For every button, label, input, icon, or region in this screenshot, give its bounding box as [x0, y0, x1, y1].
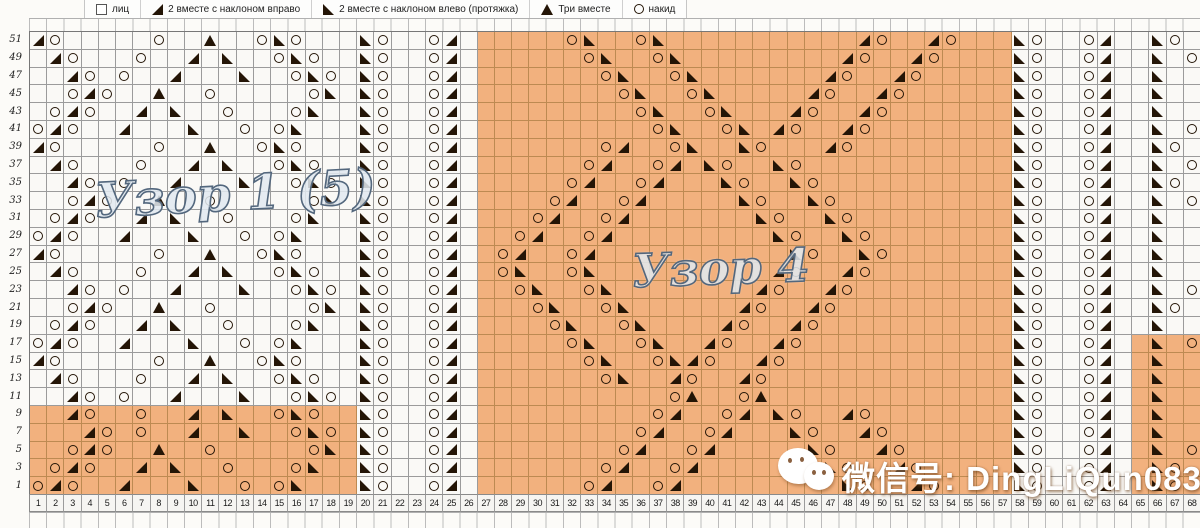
- grid-cell: [547, 335, 564, 353]
- decrease-left-icon: [1014, 249, 1025, 260]
- decrease-left-icon: [790, 427, 801, 438]
- grid-cell: [392, 263, 409, 281]
- grid-cell: [495, 477, 512, 495]
- col-label: 3: [64, 494, 81, 512]
- decrease-left-icon: [1152, 177, 1163, 188]
- yarn-over-icon: [1032, 320, 1042, 330]
- grid-cell: [1012, 246, 1029, 264]
- grid-cell: [616, 85, 633, 103]
- yarn-over-icon: [808, 107, 818, 117]
- grid-cell: [1184, 210, 1200, 228]
- decrease-left-icon: [704, 160, 715, 171]
- row-label: 11: [0, 387, 28, 405]
- decrease-right-icon: [859, 35, 870, 46]
- yarn-over-icon: [774, 356, 784, 366]
- grid-cell: [202, 477, 219, 495]
- grid-cell: [47, 424, 64, 442]
- grid-cell: [1046, 353, 1063, 371]
- grid-cell: [151, 477, 168, 495]
- grid-cell: [47, 281, 64, 299]
- grid-cell: [822, 103, 839, 121]
- yarn-over-icon: [877, 107, 887, 117]
- grid-cell: [650, 353, 667, 371]
- yarn-over-icon: [808, 178, 818, 188]
- grid-cell: [1132, 228, 1149, 246]
- grid-cell: [960, 299, 977, 317]
- grid-cell: [306, 228, 323, 246]
- grid-cell: [753, 370, 770, 388]
- col-label: 47: [822, 494, 839, 512]
- yarn-over-icon: [429, 320, 439, 330]
- grid-cell: [925, 85, 942, 103]
- grid-cell: [185, 353, 202, 371]
- col-label: 43: [753, 494, 770, 512]
- grid-cell: [633, 442, 650, 460]
- grid-cell: [64, 353, 81, 371]
- yarn-over-icon: [378, 338, 388, 348]
- decrease-left-icon: [291, 480, 302, 491]
- grid-cell: [1046, 157, 1063, 175]
- grid-cell: [271, 157, 288, 175]
- grid-cell: [1046, 68, 1063, 86]
- decrease-right-icon: [50, 480, 61, 491]
- grid-cell: [943, 121, 960, 139]
- yarn-over-icon: [670, 392, 680, 402]
- yarn-over-icon: [584, 53, 594, 63]
- grid-cell: [237, 174, 254, 192]
- grid-cell: [1149, 68, 1166, 86]
- yarn-over-icon: [1032, 231, 1042, 241]
- grid-cell: [1012, 121, 1029, 139]
- grid-cell: [581, 68, 598, 86]
- grid-cell: [616, 388, 633, 406]
- yarn-over-icon: [274, 160, 284, 170]
- grid-cell: [254, 121, 271, 139]
- decrease-left-icon: [308, 213, 319, 224]
- yarn-over-icon: [498, 249, 508, 259]
- grid-cell: [461, 353, 478, 371]
- decrease-left-icon: [360, 142, 371, 153]
- grid-cell: [1029, 424, 1046, 442]
- grid-cell: [908, 68, 925, 86]
- grid-cell: [1012, 388, 1029, 406]
- yarn-over-icon: [33, 481, 43, 491]
- grid-cell: [1012, 317, 1029, 335]
- grid-cell: [650, 442, 667, 460]
- grid-cell: [47, 210, 64, 228]
- yarn-over-icon: [877, 249, 887, 259]
- yarn-over-icon: [1084, 231, 1094, 241]
- grid-cell: [1080, 281, 1097, 299]
- yarn-over-icon: [119, 392, 129, 402]
- grid-cell: [753, 121, 770, 139]
- grid-cell: [1063, 32, 1080, 50]
- grid-cell: [99, 139, 116, 157]
- grid-cell: [977, 388, 994, 406]
- grid-cell: [650, 157, 667, 175]
- grid-cell: [1012, 406, 1029, 424]
- grid-cell: [323, 388, 340, 406]
- col-label: 4: [82, 494, 99, 512]
- grid-cell: [409, 174, 426, 192]
- grid-cell: [753, 228, 770, 246]
- grid-cell: [443, 139, 460, 157]
- yarn-over-icon: [291, 285, 301, 295]
- grid-cell: [598, 388, 615, 406]
- grid-cell: [667, 370, 684, 388]
- decrease-right-icon: [188, 160, 199, 171]
- col-label: 6: [116, 494, 133, 512]
- grid-cell: [650, 85, 667, 103]
- grid-cell: [202, 103, 219, 121]
- grid-cell: [30, 121, 47, 139]
- grid-cell: [237, 299, 254, 317]
- yarn-over-icon: [240, 231, 250, 241]
- grid-cell: [908, 335, 925, 353]
- grid-cell: [168, 121, 185, 139]
- pattern-grid: [29, 31, 1200, 495]
- grid-cell: [529, 32, 546, 50]
- yarn-over-icon: [50, 356, 60, 366]
- grid-cell: [340, 442, 357, 460]
- grid-cell: [943, 335, 960, 353]
- decrease-left-icon: [360, 160, 371, 171]
- grid-cell: [702, 139, 719, 157]
- grid-cell: [564, 388, 581, 406]
- grid-cell: [271, 406, 288, 424]
- grid-cell: [202, 192, 219, 210]
- decrease-right-icon: [446, 106, 457, 117]
- yarn-over-icon: [877, 427, 887, 437]
- grid-cell: [168, 424, 185, 442]
- yarn-over-icon: [378, 320, 388, 330]
- grid-cell: [684, 370, 701, 388]
- grid-cell: [409, 50, 426, 68]
- grid-cell: [288, 281, 305, 299]
- grid-cell: [1115, 246, 1132, 264]
- grid-cell: [736, 370, 753, 388]
- grid-cell: [874, 406, 891, 424]
- decrease-left-icon: [308, 462, 319, 473]
- grid-cell: [443, 192, 460, 210]
- decrease-right-icon: [170, 284, 181, 295]
- grid-cell: [1149, 317, 1166, 335]
- grid-cell: [288, 317, 305, 335]
- grid-cell: [805, 335, 822, 353]
- grid-cell: [99, 424, 116, 442]
- col-label: 9: [168, 494, 185, 512]
- grid-cell: [1098, 32, 1115, 50]
- grid-cell: [598, 68, 615, 86]
- decrease-right-icon: [1100, 373, 1111, 384]
- col-label: 21: [374, 494, 391, 512]
- grid-cell: [736, 139, 753, 157]
- grid-cell: [994, 370, 1011, 388]
- grid-cell: [340, 157, 357, 175]
- grid-cell: [237, 442, 254, 460]
- grid-cell: [616, 228, 633, 246]
- grid-cell: [99, 121, 116, 139]
- grid-cell: [168, 317, 185, 335]
- decrease-right-icon: [446, 195, 457, 206]
- grid-cell: [788, 406, 805, 424]
- decrease-left-icon: [308, 284, 319, 295]
- grid-cell: [323, 335, 340, 353]
- yarn-over-icon: [1084, 53, 1094, 63]
- grid-cell: [237, 370, 254, 388]
- grid-cell: [805, 121, 822, 139]
- yarn-over-icon: [791, 267, 801, 277]
- grid-cell: [443, 424, 460, 442]
- grid-cell: [409, 353, 426, 371]
- grid-cell: [977, 370, 994, 388]
- grid-cell: [47, 459, 64, 477]
- grid-cell: [357, 246, 374, 264]
- grid-cell: [788, 281, 805, 299]
- grid-cell: [288, 477, 305, 495]
- yarn-over-icon: [274, 338, 284, 348]
- grid-cell: [598, 50, 615, 68]
- grid-cell: [857, 174, 874, 192]
- grid-cell: [547, 210, 564, 228]
- decrease-right-icon: [928, 35, 939, 46]
- grid-cell: [1080, 335, 1097, 353]
- legend-item: 2 вместе с наклоном влево (протяжка): [312, 0, 530, 18]
- grid-cell: [581, 246, 598, 264]
- grid-cell: [392, 32, 409, 50]
- grid-cell: [598, 174, 615, 192]
- grid-cell: [392, 370, 409, 388]
- grid-cell: [30, 388, 47, 406]
- grid-cell: [409, 317, 426, 335]
- grid-cell: [1149, 85, 1166, 103]
- grid-cell: [822, 424, 839, 442]
- grid-cell: [1167, 406, 1184, 424]
- grid-cell: [839, 228, 856, 246]
- grid-cell: [185, 442, 202, 460]
- grid-cell: [409, 459, 426, 477]
- grid-cell: [994, 85, 1011, 103]
- grid-cell: [116, 406, 133, 424]
- grid-cell: [616, 281, 633, 299]
- decrease-right-icon: [687, 355, 698, 366]
- grid-cell: [116, 103, 133, 121]
- grid-cell: [168, 281, 185, 299]
- grid-cell: [736, 281, 753, 299]
- grid-cell: [684, 246, 701, 264]
- grid-cell: [925, 68, 942, 86]
- grid-cell: [478, 335, 495, 353]
- grid-cell: [581, 335, 598, 353]
- grid-cell: [857, 299, 874, 317]
- grid-cell: [684, 335, 701, 353]
- grid-cell: [667, 32, 684, 50]
- grid-cell: [323, 477, 340, 495]
- grid-cell: [133, 139, 150, 157]
- yarn-over-icon: [1084, 409, 1094, 419]
- decrease-left-icon: [291, 53, 302, 64]
- yarn-over-icon: [102, 196, 112, 206]
- grid-cell: [99, 281, 116, 299]
- yarn-over-icon: [378, 303, 388, 313]
- grid-cell: [254, 103, 271, 121]
- yarn-over-icon: [842, 71, 852, 81]
- grid-cell: [598, 157, 615, 175]
- grid-cell: [443, 317, 460, 335]
- decrease-right-icon: [67, 106, 78, 117]
- decrease-left-icon: [1014, 355, 1025, 366]
- decrease-left-icon: [1152, 160, 1163, 171]
- yarn-over-icon: [50, 463, 60, 473]
- decrease-left-icon: [1014, 213, 1025, 224]
- grid-cell: [185, 174, 202, 192]
- col-label: 36: [633, 494, 650, 512]
- grid-cell: [47, 317, 64, 335]
- grid-cell: [581, 210, 598, 228]
- yarn-over-icon: [601, 142, 611, 152]
- grid-cell: [770, 353, 787, 371]
- grid-cell: [650, 68, 667, 86]
- yarn-over-icon: [291, 35, 301, 45]
- decrease-left-icon: [360, 106, 371, 117]
- grid-cell: [994, 210, 1011, 228]
- grid-cell: [805, 192, 822, 210]
- triple-decrease-icon: [204, 142, 216, 153]
- grid-cell: [271, 50, 288, 68]
- yarn-over-icon: [722, 124, 732, 134]
- col-label: 34: [598, 494, 615, 512]
- yarn-over-icon: [378, 285, 388, 295]
- decrease-left-icon: [1152, 320, 1163, 331]
- grid-cell: [1046, 32, 1063, 50]
- grid-cell: [116, 281, 133, 299]
- grid-cell: [547, 68, 564, 86]
- grid-cell: [323, 192, 340, 210]
- grid-cell: [237, 406, 254, 424]
- grid-cell: [943, 406, 960, 424]
- grid-cell: [512, 263, 529, 281]
- grid-cell: [82, 50, 99, 68]
- grid-cell: [82, 157, 99, 175]
- grid-cell: [616, 174, 633, 192]
- grid-cell: [219, 228, 236, 246]
- col-label: 30: [529, 494, 546, 512]
- grid-cell: [529, 50, 546, 68]
- row-label: 29: [0, 227, 28, 245]
- decrease-right-icon: [446, 160, 457, 171]
- grid-cell: [288, 103, 305, 121]
- grid-cell: [185, 424, 202, 442]
- grid-cell: [650, 246, 667, 264]
- yarn-over-icon: [326, 392, 336, 402]
- grid-cell: [202, 281, 219, 299]
- yarn-over-icon: [1170, 303, 1180, 313]
- grid-cell: [512, 246, 529, 264]
- grid-cell: [616, 139, 633, 157]
- yarn-over-icon: [257, 249, 267, 259]
- grid-cell: [650, 228, 667, 246]
- yarn-over-icon: [85, 107, 95, 117]
- grid-cell: [133, 370, 150, 388]
- grid-cell: [1149, 406, 1166, 424]
- grid-cell: [1029, 85, 1046, 103]
- grid-cell: [943, 157, 960, 175]
- grid-cell: [82, 139, 99, 157]
- yarn-over-icon: [68, 124, 78, 134]
- decrease-right-icon: [704, 338, 715, 349]
- grid-cell: [1012, 335, 1029, 353]
- grid-cell: [495, 228, 512, 246]
- decrease-left-icon: [239, 71, 250, 82]
- grid-cell: [943, 139, 960, 157]
- grid-cell: [822, 228, 839, 246]
- grid-cell: [1029, 246, 1046, 264]
- grid-cell: [633, 228, 650, 246]
- grid-cell: [925, 406, 942, 424]
- grid-cell: [1184, 228, 1200, 246]
- grid-cell: [736, 299, 753, 317]
- yarn-over-icon: [378, 71, 388, 81]
- grid-cell: [719, 228, 736, 246]
- grid-cell: [633, 406, 650, 424]
- grid-cell: [495, 442, 512, 460]
- grid-cell: [168, 353, 185, 371]
- grid-cell: [133, 424, 150, 442]
- grid-cell: [908, 370, 925, 388]
- grid-cell: [133, 68, 150, 86]
- grid-cell: [857, 263, 874, 281]
- grid-cell: [581, 406, 598, 424]
- grid-cell: [839, 32, 856, 50]
- grid-cell: [512, 388, 529, 406]
- grid-cell: [925, 424, 942, 442]
- grid-cell: [529, 139, 546, 157]
- grid-cell: [908, 103, 925, 121]
- grid-cell: [960, 32, 977, 50]
- yarn-over-icon: [378, 196, 388, 206]
- grid-cell: [64, 32, 81, 50]
- grid-cell: [323, 32, 340, 50]
- grid-cell: [288, 192, 305, 210]
- triple-decrease-icon: [204, 249, 216, 260]
- decrease-left-icon: [1152, 231, 1163, 242]
- grid-cell: [891, 50, 908, 68]
- grid-cell: [1063, 424, 1080, 442]
- decrease-right-icon: [67, 284, 78, 295]
- grid-cell: [547, 263, 564, 281]
- yarn-over-icon: [687, 374, 697, 384]
- grid-cell: [1080, 68, 1097, 86]
- grid-cell: [1098, 174, 1115, 192]
- decrease-left-icon: [1152, 409, 1163, 420]
- yarn-over-icon: [102, 303, 112, 313]
- grid-cell: [1167, 103, 1184, 121]
- grid-cell: [271, 335, 288, 353]
- grid-cell: [753, 353, 770, 371]
- grid-cell: [357, 442, 374, 460]
- yarn-over-icon: [274, 374, 284, 384]
- grid-cell: [857, 281, 874, 299]
- decrease-right-icon: [446, 355, 457, 366]
- grid-cell: [47, 335, 64, 353]
- decrease-left-icon: [1014, 195, 1025, 206]
- grid-cell: [1012, 68, 1029, 86]
- grid-cell: [857, 210, 874, 228]
- grid-cell: [99, 210, 116, 228]
- grid-cell: [1046, 85, 1063, 103]
- grid-cell: [495, 157, 512, 175]
- grid-cell: [254, 388, 271, 406]
